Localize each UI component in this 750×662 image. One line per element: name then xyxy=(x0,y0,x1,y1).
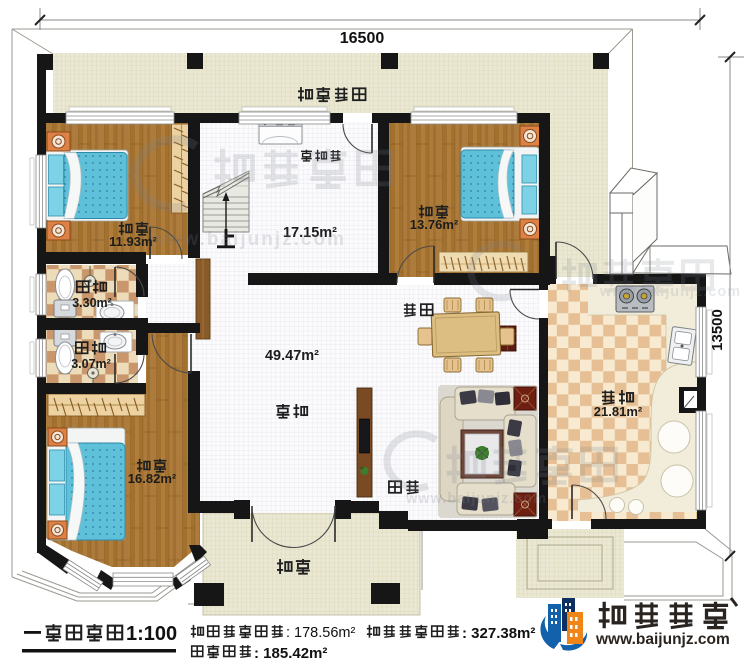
svg-text:www.baijunjz.com: www.baijunjz.com xyxy=(595,631,730,648)
svg-text:13500: 13500 xyxy=(709,309,726,351)
svg-text:www.baijunjz.com: www.baijunjz.com xyxy=(599,284,741,300)
svg-text:49.47m²: 49.47m² xyxy=(265,348,319,364)
svg-text:3.30m²: 3.30m² xyxy=(72,296,112,310)
svg-text:16500: 16500 xyxy=(340,30,385,47)
svg-text:: 185.42m²: : 185.42m² xyxy=(254,645,327,662)
svg-text:1:100: 1:100 xyxy=(126,623,177,645)
svg-text:: 178.56m²: : 178.56m² xyxy=(286,625,355,641)
svg-text:www.baijunjz.com: www.baijunjz.com xyxy=(405,491,547,507)
svg-text:3.07m²: 3.07m² xyxy=(71,357,111,371)
svg-text:16.82m²: 16.82m² xyxy=(128,471,177,486)
svg-text:www.baijunjz.com: www.baijunjz.com xyxy=(149,229,346,250)
svg-text:21.81m²: 21.81m² xyxy=(594,404,643,419)
svg-text:13.76m²: 13.76m² xyxy=(410,217,459,232)
svg-text:: 327.38m²: : 327.38m² xyxy=(462,625,535,642)
